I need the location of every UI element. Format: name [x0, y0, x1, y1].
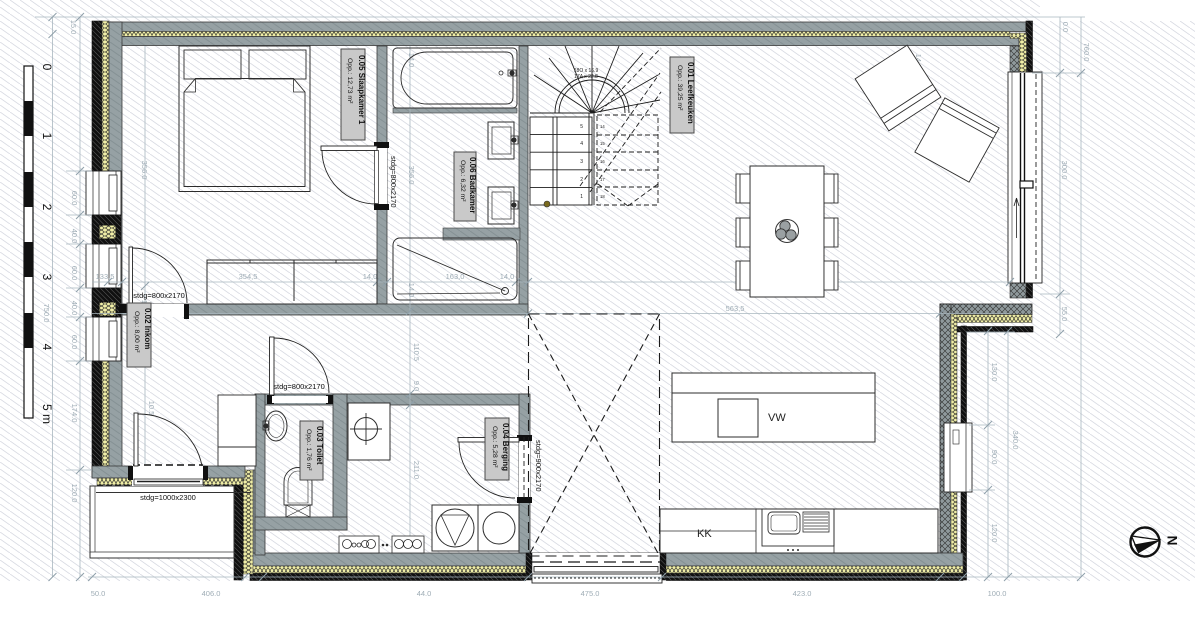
svg-text:110.5: 110.5	[412, 343, 421, 361]
svg-text:KK: KK	[697, 528, 712, 540]
svg-text:354,5: 354,5	[239, 272, 258, 281]
svg-text:16: 16	[600, 159, 605, 164]
svg-text:133,5: 133,5	[96, 272, 115, 281]
svg-text:163,0: 163,0	[446, 272, 465, 281]
svg-text:475.0: 475.0	[581, 589, 600, 598]
svg-text:Opp.: 5,28 m²: Opp.: 5,28 m²	[491, 426, 498, 468]
svg-text:Opp.: 8,00 m²: Opp.: 8,00 m²	[133, 311, 140, 353]
svg-text:1: 1	[40, 133, 54, 140]
svg-text:40.0: 40.0	[70, 301, 79, 316]
svg-text:90.0: 90.0	[990, 450, 999, 465]
svg-text:60.0: 60.0	[70, 191, 79, 206]
svg-text:563,5: 563,5	[726, 304, 745, 313]
svg-text:stdg=900x2170: stdg=900x2170	[534, 440, 543, 492]
svg-text:1: 1	[580, 194, 583, 200]
svg-text:9.0: 9.0	[412, 381, 421, 391]
svg-text:14,0: 14,0	[500, 272, 515, 281]
svg-text:5: 5	[580, 124, 583, 130]
svg-text:0.01 Leefkeuken: 0.01 Leefkeuken	[686, 62, 695, 124]
svg-text:0.0: 0.0	[1061, 22, 1070, 32]
svg-text:Opp.: 12,73 m²: Opp.: 12,73 m²	[346, 58, 353, 104]
svg-text:3: 3	[580, 159, 583, 165]
svg-text:15: 15	[600, 141, 605, 146]
svg-text:0.04 Berging: 0.04 Berging	[501, 423, 510, 471]
svg-text:340.0: 340.0	[1011, 431, 1020, 450]
svg-text:5 m: 5 m	[40, 404, 54, 424]
svg-text:10.5: 10.5	[147, 401, 156, 416]
svg-text:4: 4	[580, 141, 583, 147]
svg-text:Opp.: 39,25 m²: Opp.: 39,25 m²	[676, 65, 683, 111]
svg-text:0.02 Inkom: 0.02 Inkom	[143, 308, 152, 349]
svg-text:17A x 22.8: 17A x 22.8	[574, 74, 598, 80]
svg-text:0.06 Badkamer: 0.06 Badkamer	[468, 157, 477, 213]
svg-text:14.0: 14.0	[407, 283, 416, 298]
svg-text:130.0: 130.0	[990, 363, 999, 382]
svg-text:174.0: 174.0	[70, 404, 79, 423]
svg-text:14,0: 14,0	[363, 272, 378, 281]
svg-text:760.0: 760.0	[1082, 43, 1091, 62]
svg-text:4: 4	[40, 344, 54, 351]
svg-text:18: 18	[600, 194, 605, 199]
svg-text:300.0: 300.0	[1060, 161, 1069, 180]
svg-text:55.0: 55.0	[1060, 307, 1069, 322]
svg-text:2: 2	[580, 177, 583, 183]
svg-text:3: 3	[40, 274, 54, 281]
svg-text:Opp.: 6,32 m²: Opp.: 6,32 m²	[459, 160, 466, 202]
svg-text:50.0: 50.0	[91, 589, 106, 598]
svg-text:211.0: 211.0	[412, 461, 421, 479]
svg-text:VW: VW	[768, 412, 786, 424]
svg-text:44.0: 44.0	[417, 589, 432, 598]
svg-text:stdg=1000x2300: stdg=1000x2300	[140, 493, 196, 502]
svg-text:423.0: 423.0	[793, 589, 812, 598]
svg-text:0: 0	[40, 64, 54, 71]
svg-text:40.0: 40.0	[70, 229, 79, 244]
svg-text:Opp.: 1,76 m²: Opp.: 1,76 m²	[305, 429, 312, 471]
svg-text:120.0: 120.0	[70, 484, 79, 503]
svg-text:406.0: 406.0	[202, 589, 221, 598]
svg-text:15.0: 15.0	[69, 20, 78, 35]
svg-text:0.03 Toilet: 0.03 Toilet	[315, 426, 324, 465]
svg-text:stdg=800x2170: stdg=800x2170	[389, 156, 398, 208]
svg-text:17: 17	[600, 177, 605, 182]
svg-text:14: 14	[600, 124, 605, 129]
svg-text:N: N	[1165, 536, 1180, 546]
svg-text:750.0: 750.0	[42, 304, 51, 323]
svg-text:2: 2	[40, 204, 54, 211]
svg-text:100.0: 100.0	[988, 589, 1007, 598]
svg-text:356.0: 356.0	[407, 166, 416, 185]
svg-text:stdg=800x2170: stdg=800x2170	[133, 291, 185, 300]
svg-text:356.0: 356.0	[140, 161, 149, 180]
svg-text:0.05 Slaapkamer 1: 0.05 Slaapkamer 1	[357, 55, 366, 125]
svg-text:120.0: 120.0	[990, 524, 999, 543]
svg-text:60.0: 60.0	[70, 335, 79, 350]
svg-text:stdg=800x2170: stdg=800x2170	[273, 382, 325, 391]
svg-text:60.0: 60.0	[70, 266, 79, 281]
